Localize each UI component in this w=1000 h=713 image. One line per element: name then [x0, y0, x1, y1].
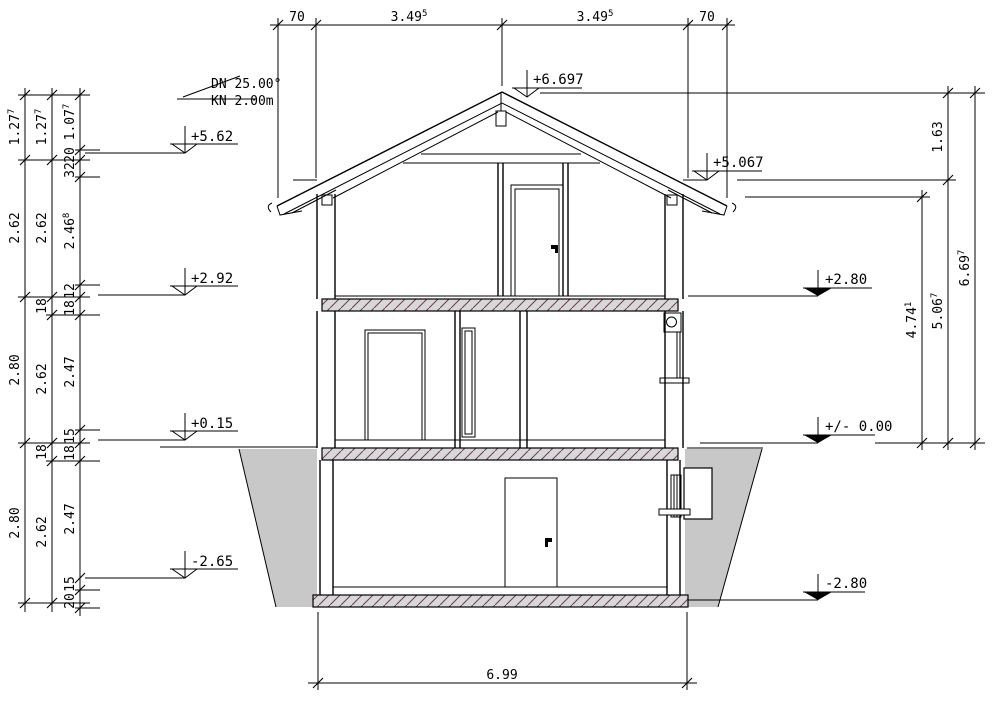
dim-right-outer-0: 6.697 [957, 250, 973, 287]
svg-text:+2.80: +2.80 [825, 272, 867, 288]
dim-left-inner-7: 15 [63, 428, 78, 444]
section-drawing: 70 3.495 3.495 70 6.99 1.277 2.62 2.80 2… [0, 0, 1000, 713]
dim-top-1: 3.495 [391, 9, 428, 25]
dim-left-inner-6: 2.47 [63, 356, 78, 387]
dim-left-inner-5: 18 [63, 300, 78, 316]
svg-text:-2.80: -2.80 [825, 576, 867, 592]
svg-text:+2.92: +2.92 [191, 271, 233, 287]
svg-text:-2.65: -2.65 [191, 554, 233, 570]
dim-left-inner-11: 20 [63, 593, 78, 609]
dim-left-inner-4: 12 [63, 283, 78, 299]
building-section-sheet: 70 3.495 3.495 70 6.99 1.277 2.62 2.80 2… [0, 0, 1000, 713]
dim-top-2: 3.495 [577, 9, 614, 25]
svg-text:+5.067: +5.067 [713, 155, 764, 171]
basement-door-handle [545, 538, 552, 542]
dim-left-outer-1: 2.62 [8, 212, 23, 243]
dim-left-outer-3: 2.80 [8, 507, 23, 538]
svg-text:+/- 0.00: +/- 0.00 [825, 419, 892, 435]
dim-left-middle-3: 2.62 [35, 363, 50, 394]
dim-left-middle-0: 1.277 [34, 109, 50, 146]
svg-text:+5.62: +5.62 [191, 129, 233, 145]
pitch-note-line1: DN 25.00° [211, 77, 281, 92]
dim-left-inner-3: 2.468 [62, 213, 78, 250]
dim-left-inner-0: 1.077 [62, 104, 78, 141]
attic-door-handle [551, 245, 558, 249]
slab-above-ground-floor [322, 299, 678, 311]
svg-text:+0.15: +0.15 [191, 416, 233, 432]
dim-left-outer-2: 2.80 [8, 354, 23, 385]
dim-right-middle-1: 5.067 [930, 293, 946, 330]
dim-left-inner-2: 32 [63, 162, 78, 178]
dim-left-middle-5: 2.62 [35, 516, 50, 547]
dim-left-middle-2: 18 [35, 298, 50, 314]
dim-bottom: 6.99 [486, 668, 517, 683]
dim-left-inner-1: 20 [63, 147, 78, 163]
dim-right-inner-0: 4.741 [904, 302, 920, 339]
basement-floor-slab [313, 595, 688, 607]
pitch-note-line2: KN 2.00m [211, 94, 274, 109]
dim-right-middle-0: 1.63 [931, 121, 946, 152]
dim-top-0: 70 [289, 10, 305, 25]
dim-left-inner-9: 2.47 [63, 503, 78, 534]
dim-left-outer-0: 1.277 [7, 109, 23, 146]
slab-above-basement [322, 448, 678, 460]
dim-left-middle-4: 18 [35, 444, 50, 460]
dim-left-inner-8: 18 [63, 445, 78, 461]
svg-text:+6.697: +6.697 [533, 72, 584, 88]
basement-window-sill [659, 509, 690, 515]
dim-left-inner-10: 15 [63, 576, 78, 592]
dim-top-3: 70 [699, 10, 715, 25]
dim-left-middle-1: 2.62 [35, 212, 50, 243]
